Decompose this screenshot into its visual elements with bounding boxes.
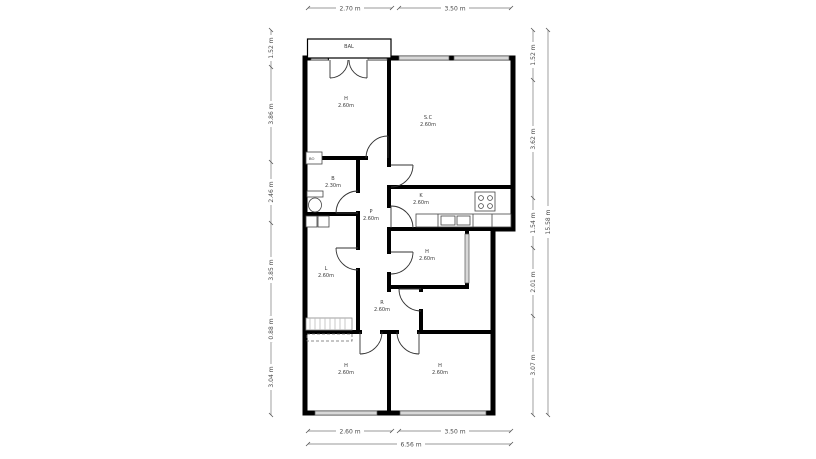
dim-right-1: 1.52 m [530, 44, 537, 65]
window-bottom-left [315, 411, 377, 415]
wall-outer [305, 58, 513, 413]
dim-right-total-label: 15.58 m [545, 209, 552, 234]
fixtures: BO [306, 152, 511, 341]
door-arc-balcony-right [349, 60, 367, 78]
door-arc-l [336, 248, 358, 270]
svg-text:B: B [331, 176, 335, 182]
svg-text:2.60m: 2.60m [420, 122, 436, 128]
dim-right: 1.52 m 3.62 m 1.54 m 2.01 m 3.07 m [529, 28, 537, 417]
room-label-l: L 2.60m [318, 266, 334, 279]
shelf-icon [318, 216, 329, 227]
room-label-sc: S.C 2.60m [420, 115, 436, 128]
svg-text:2.60m: 2.60m [419, 256, 435, 262]
room-label-b: B 2.30m [325, 176, 341, 189]
room-label-r: R 2.60m [374, 300, 390, 313]
shelf-icon [306, 216, 317, 227]
dim-left: 1.52 m 3.86 m 2.46 m 3.85 m 0.88 m 3.04 … [267, 28, 275, 417]
svg-text:S.C: S.C [424, 115, 433, 121]
svg-text:2.60m: 2.60m [338, 103, 354, 109]
dim-left-5: 0.88 m [268, 318, 275, 339]
svg-text:2.60m: 2.60m [432, 370, 448, 376]
svg-text:K: K [419, 193, 423, 199]
svg-text:2.60m: 2.60m [374, 307, 390, 313]
dim-left-1: 1.52 m [268, 37, 275, 58]
stove-icon [475, 192, 495, 211]
dim-left-2: 3.86 m [268, 103, 275, 124]
window-top-right-a [399, 56, 449, 60]
svg-text:2.60m: 2.60m [413, 200, 429, 206]
door-arc-h-bottom-left [360, 332, 382, 354]
dim-right-5: 3.07 m [530, 354, 537, 375]
door-arc-sc [391, 165, 413, 187]
dim-bottom: 2.60 m 3.50 m 6.56 m [306, 427, 513, 449]
walls [305, 58, 513, 413]
door-arc-r [399, 289, 421, 311]
closet-dashed [307, 334, 352, 341]
room-label-h-top: H 2.60m [338, 96, 354, 109]
floorplan-page: BAL BO [0, 0, 816, 459]
balcony: BAL [308, 39, 392, 58]
room-label-h-bottom-right: H 2.60m [432, 363, 448, 376]
dim-right-2: 3.62 m [530, 128, 537, 149]
svg-text:L: L [325, 266, 328, 272]
dim-left-6: 3.04 m [268, 366, 275, 387]
boiler-label: BO [309, 156, 315, 161]
dim-right-4: 2.01 m [530, 271, 537, 292]
room-label-h-mid: H 2.60m [419, 249, 435, 262]
door-arc-h-mid [391, 252, 413, 274]
dim-bottom-total-label: 6.56 m [400, 442, 421, 449]
door-arc-h-bottom-right [397, 332, 419, 354]
balcony-label: BAL [344, 44, 354, 50]
window-bottom-right [400, 411, 486, 415]
dim-left-3: 2.46 m [268, 181, 275, 202]
svg-text:P: P [369, 209, 372, 215]
svg-text:H: H [425, 249, 429, 255]
room-label-p: P 2.60m [363, 209, 379, 222]
window-top-right-b [454, 56, 509, 60]
svg-text:R: R [380, 300, 384, 306]
dim-top-left-label: 2.70 m [339, 6, 360, 13]
svg-text:2.60m: 2.60m [338, 370, 354, 376]
dim-top-right-label: 3.50 m [444, 6, 465, 13]
dim-left-4: 3.85 m [268, 259, 275, 280]
room-label-k: K 2.60m [413, 193, 429, 206]
door-arc-bathroom [336, 191, 358, 213]
svg-text:H: H [438, 363, 442, 369]
dim-bottom-right-label: 3.50 m [444, 429, 465, 436]
dim-top: 2.70 m 3.50 m [306, 4, 513, 13]
dim-right-total: 15.58 m [544, 28, 552, 417]
svg-text:2.60m: 2.60m [318, 273, 334, 279]
svg-text:H: H [344, 96, 348, 102]
door-arc-balcony-left [330, 60, 348, 78]
svg-text:2.60m: 2.60m [363, 216, 379, 222]
floor-plan-svg: BAL BO [0, 0, 816, 459]
door-arc-kitchen [391, 206, 413, 228]
dim-right-3: 1.54 m [530, 212, 537, 233]
wardrobe-hatch [306, 318, 352, 330]
room-label-h-bottom-left: H 2.60m [338, 363, 354, 376]
svg-text:2.30m: 2.30m [325, 183, 341, 189]
svg-text:H: H [344, 363, 348, 369]
toilet-icon [307, 191, 323, 212]
window-room-h-mid [465, 234, 469, 283]
dim-bottom-left-label: 2.60 m [339, 429, 360, 436]
windows [311, 56, 509, 415]
door-arc-h-top [366, 136, 388, 158]
